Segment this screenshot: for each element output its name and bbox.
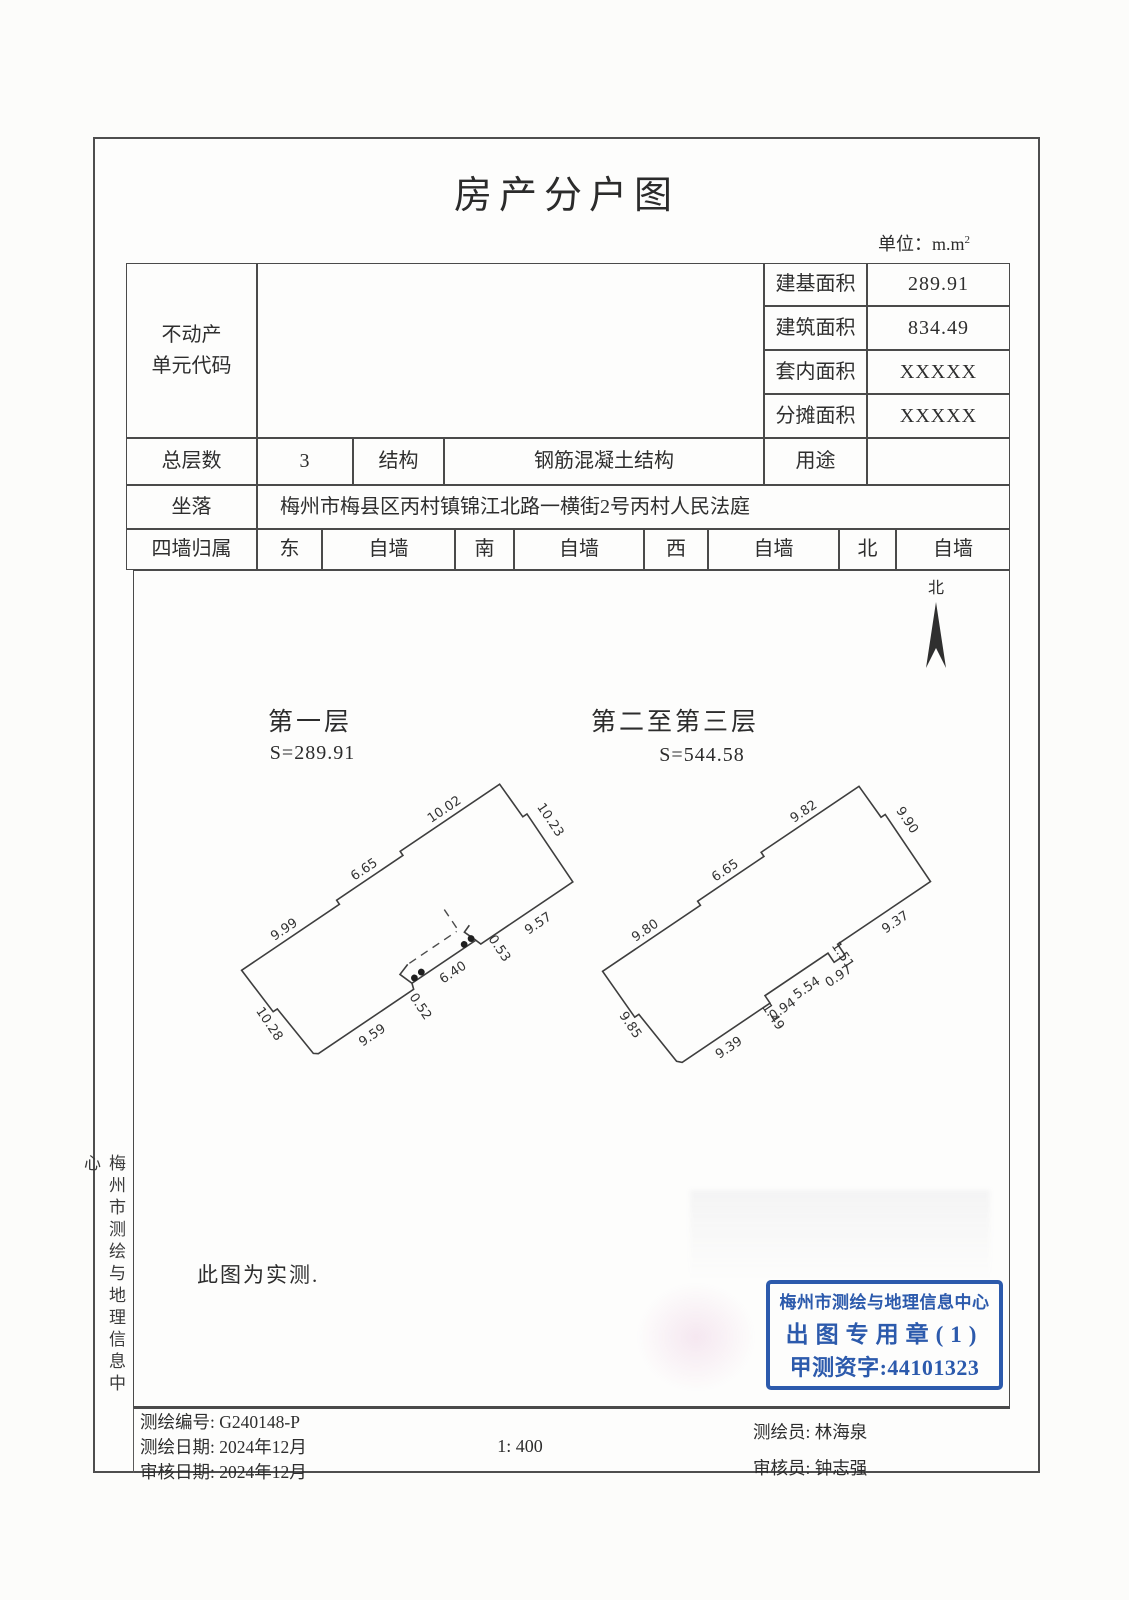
north-label: 北 xyxy=(920,574,952,598)
page-title: 房产分户图 xyxy=(93,164,1040,219)
stamp-line1: 梅州市测绘与地理信息中心 xyxy=(780,1288,990,1313)
property-info-table: 不动产 单元代码 建基面积 289.91 建筑面积 834.49 套内面积 XX… xyxy=(126,263,1010,570)
usage-value xyxy=(867,438,1010,485)
survey-note: 此图为实测. xyxy=(197,1259,319,1289)
unit-note: 单位：m.m2 xyxy=(700,230,970,256)
scan-ghost-mark xyxy=(690,1190,990,1280)
map-scale: 1: 400 xyxy=(450,1436,590,1457)
floors-value: 3 xyxy=(257,438,353,485)
area-label-jianzhu: 建筑面积 xyxy=(764,306,867,350)
wall-dir-south: 南 xyxy=(455,529,514,570)
footer-right-block: 测绘员: 林海泉 审核员: 钟志强 xyxy=(753,1414,867,1486)
wall-own-north: 自墙 xyxy=(896,529,1010,570)
reviewer: 审核员: 钟志强 xyxy=(753,1450,867,1486)
area-value-jianji: 289.91 xyxy=(867,263,1010,306)
wall-own-east: 自墙 xyxy=(322,529,455,570)
agency-stamp: 梅州市测绘与地理信息中心 出图专用章(1) 甲测资字:44101323 xyxy=(766,1280,1003,1390)
plan1-title: 第一层 xyxy=(235,702,385,738)
wall-dir-north: 北 xyxy=(839,529,896,570)
survey-date: 测绘日期: 2024年12月 xyxy=(140,1435,307,1460)
plan1-area: S=289.91 xyxy=(230,742,395,765)
location-value: 梅州市梅县区丙村镇锦江北路一横街2号丙村人民法庭 xyxy=(257,485,1010,529)
survey-number: 测绘编号: G240148-P xyxy=(140,1410,307,1435)
area-value-taonei: XXXXX xyxy=(867,350,1010,394)
unit-code-label: 不动产 单元代码 xyxy=(152,320,232,382)
floors-label: 总层数 xyxy=(126,438,257,485)
usage-label: 用途 xyxy=(764,438,867,485)
area-value-jianzhu: 834.49 xyxy=(867,306,1010,350)
area-label-fentan: 分摊面积 xyxy=(764,394,867,438)
location-label: 坐落 xyxy=(126,485,257,529)
unit-note-text: 单位：m.m xyxy=(878,234,965,254)
plan2-area: S=544.58 xyxy=(612,744,792,767)
agency-vertical-text: 梅州市测绘与地理信息中心 xyxy=(96,1154,128,1414)
walls-label: 四墙归属 xyxy=(126,529,257,570)
footer-left-block: 测绘编号: G240148-P 测绘日期: 2024年12月 审核日期: 202… xyxy=(140,1410,307,1485)
wall-dir-east: 东 xyxy=(257,529,322,570)
wall-dir-west: 西 xyxy=(644,529,708,570)
faded-stamp-remnant xyxy=(636,1282,756,1392)
unit-code-value-cell xyxy=(257,263,764,438)
structure-value: 钢筋混凝土结构 xyxy=(444,438,764,485)
area-label-taonei: 套内面积 xyxy=(764,350,867,394)
stamp-line3: 甲测资字:44101323 xyxy=(790,1350,980,1382)
stamp-line2: 出图专用章(1) xyxy=(786,1315,984,1349)
plan2-title: 第二至第三层 xyxy=(580,702,770,738)
unit-note-sup: 2 xyxy=(965,234,971,246)
wall-own-south: 自墙 xyxy=(514,529,644,570)
review-date: 审核日期: 2024年12月 xyxy=(140,1460,307,1485)
surveyor: 测绘员: 林海泉 xyxy=(753,1414,867,1450)
area-value-fentan: XXXXX xyxy=(867,394,1010,438)
wall-own-west: 自墙 xyxy=(708,529,839,570)
structure-label: 结构 xyxy=(353,438,444,485)
area-label-jianji: 建基面积 xyxy=(764,263,867,306)
unit-code-label-cell: 不动产 单元代码 xyxy=(126,263,257,438)
